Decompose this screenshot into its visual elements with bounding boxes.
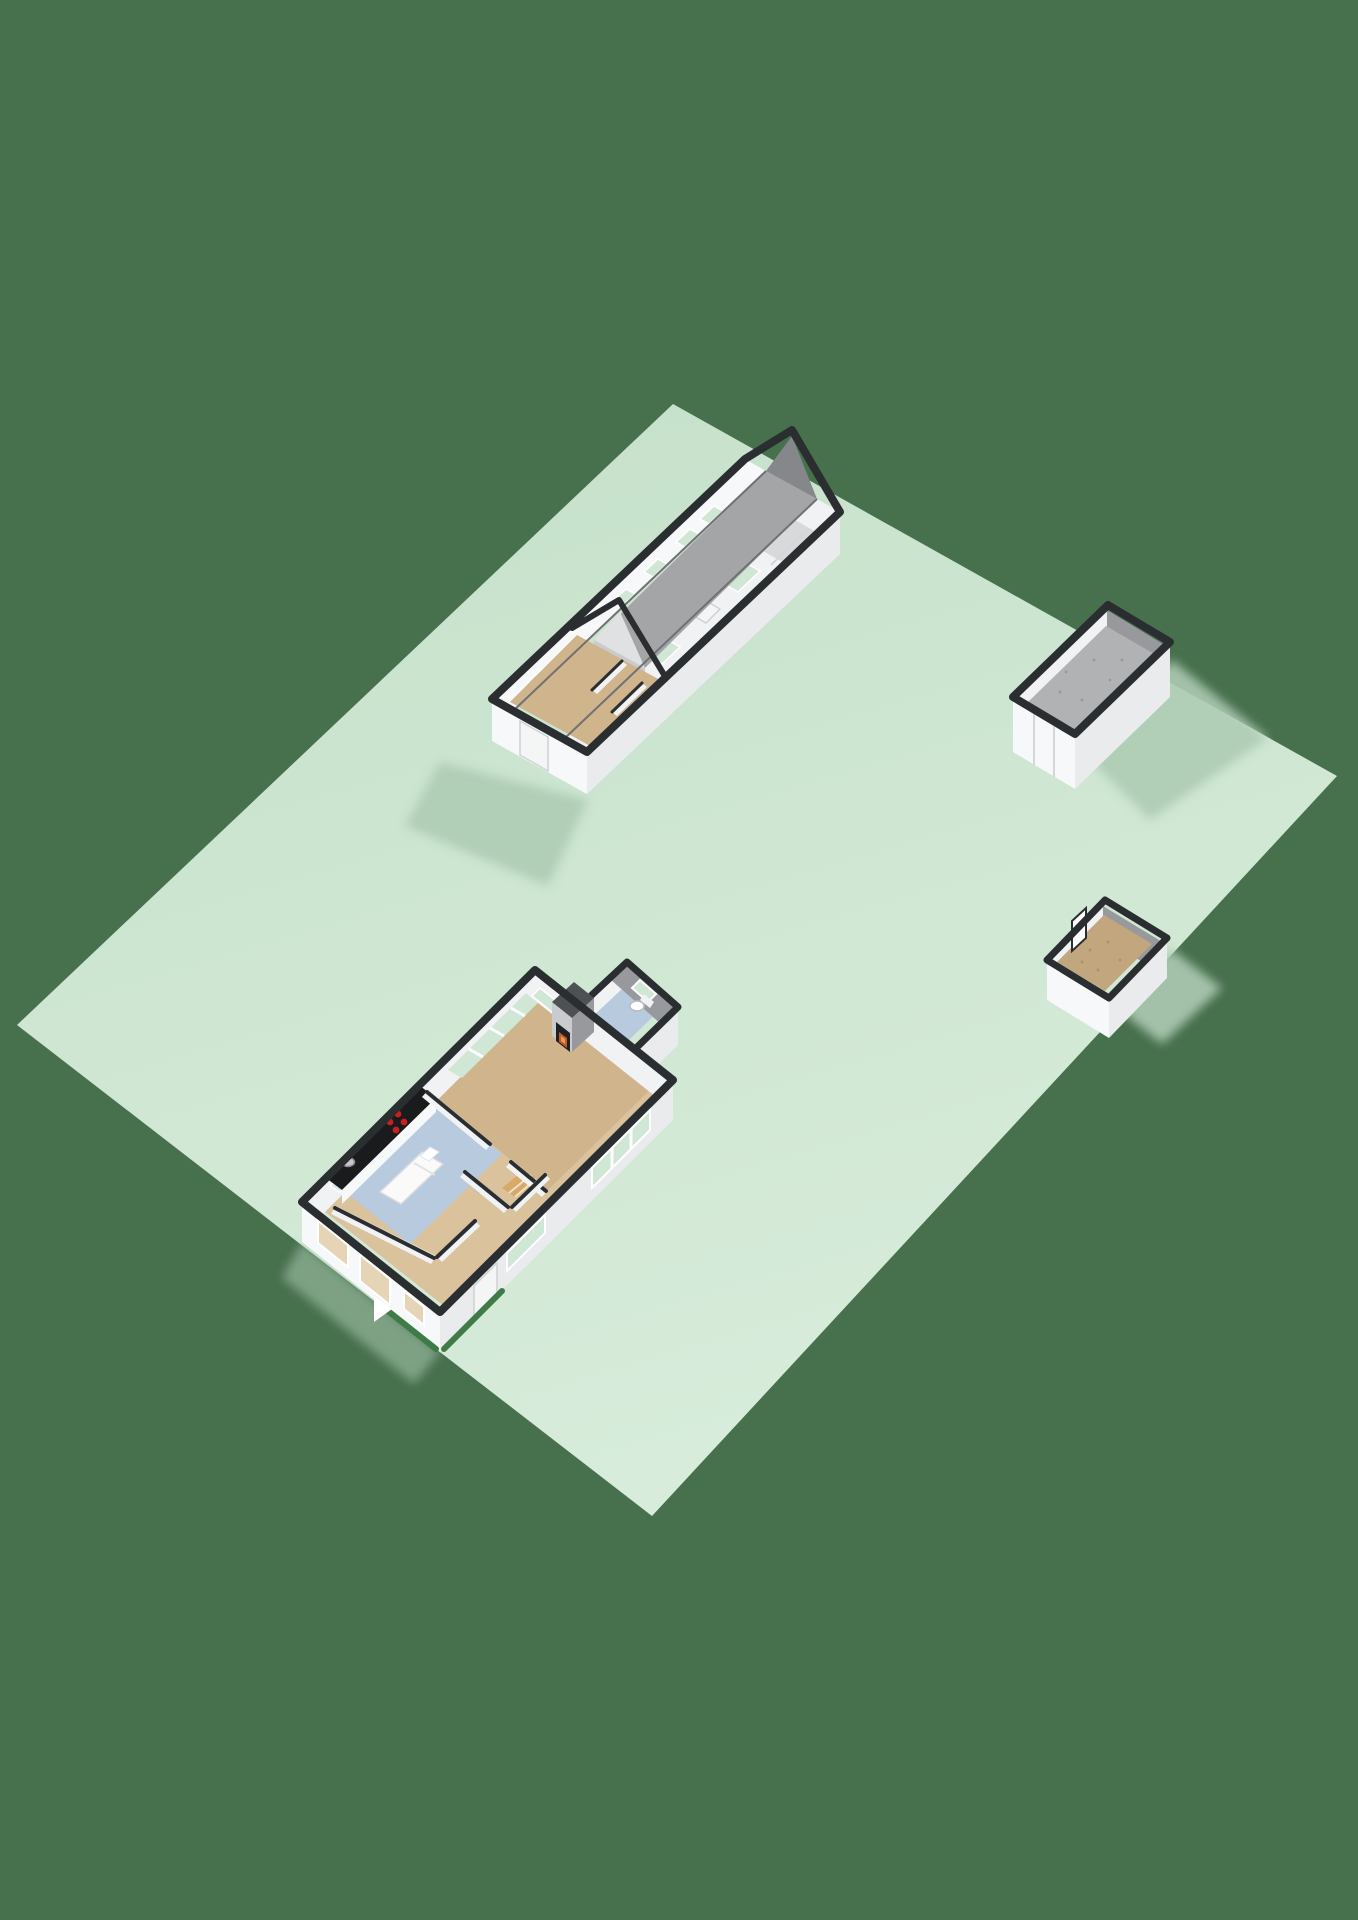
floorplan-stage: 3D floorplan site view — lawn parcel wit…	[0, 0, 1358, 1920]
site-render: 3D floorplan site view — lawn parcel wit…	[0, 0, 1358, 1920]
